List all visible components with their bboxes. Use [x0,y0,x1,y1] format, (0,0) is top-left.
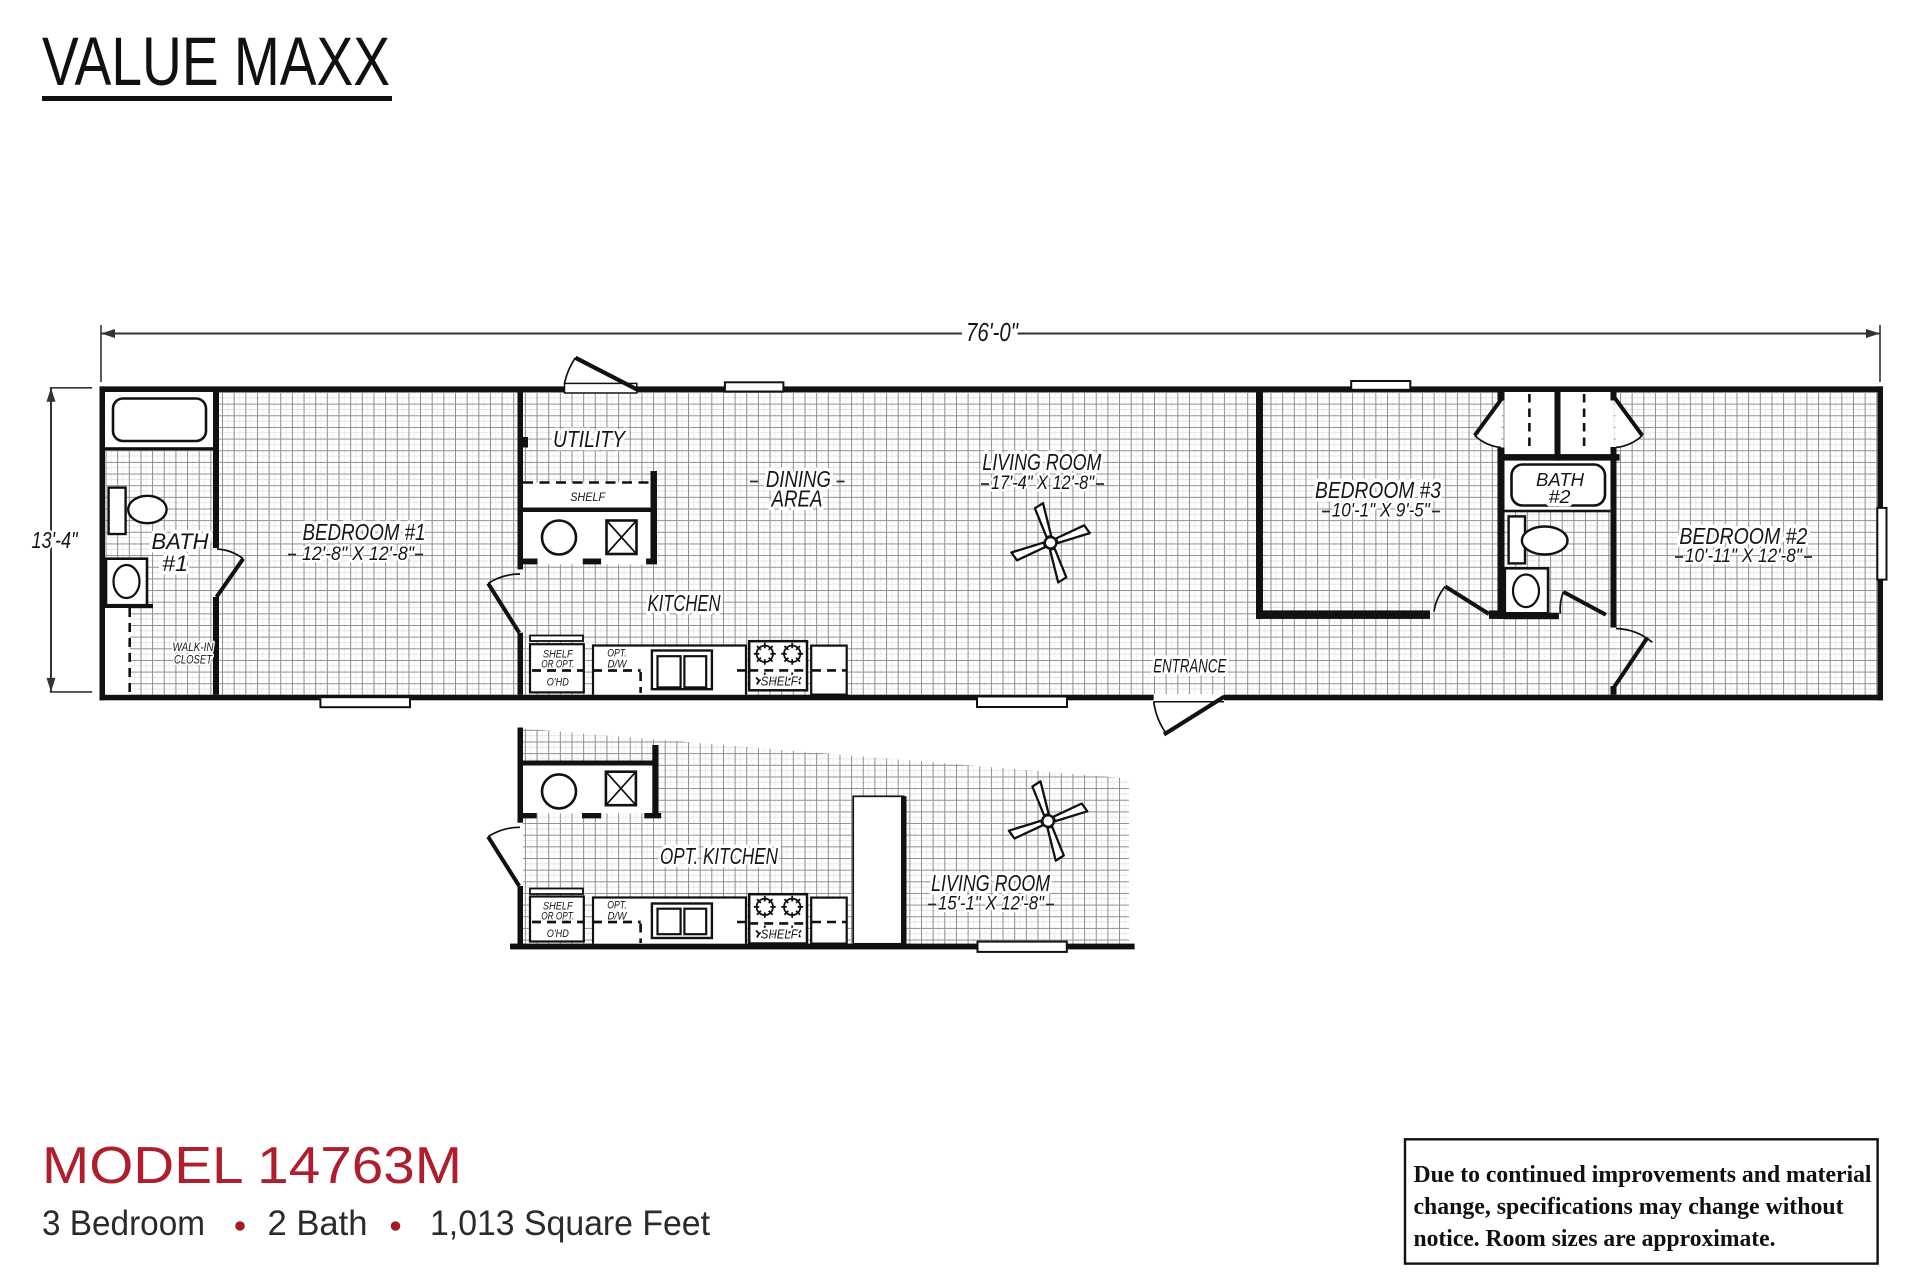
svg-text:change, specifications may cha: change, specifications may change withou… [1414,1193,1845,1220]
svg-text:D/W: D/W [608,659,628,671]
svg-text:12'-8" X 12'-8": 12'-8" X 12'-8" [302,544,415,565]
svg-text:O'HD: O'HD [547,928,569,940]
svg-text:OR OPT.: OR OPT. [541,659,574,671]
svg-text:CLOSET: CLOSET [174,653,213,667]
svg-text:OPT. KITCHEN: OPT. KITCHEN [660,843,778,869]
svg-text:AREA: AREA [770,486,823,512]
svg-text:SHELF: SHELF [761,928,799,942]
svg-text:O'HD: O'HD [547,677,569,689]
svg-text:UTILITY: UTILITY [553,426,626,452]
svg-text:BEDROOM #3: BEDROOM #3 [1315,477,1441,503]
svg-text:Due to continued improvements: Due to continued improvements and materi… [1414,1161,1872,1188]
svg-text:1,013 Square Feet: 1,013 Square Feet [430,1203,710,1243]
svg-text:13'-4": 13'-4" [32,527,79,553]
svg-text:10'-11" X 12'-8": 10'-11" X 12'-8" [1685,546,1803,567]
svg-text:#1: #1 [162,551,188,576]
svg-text:BEDROOM #1: BEDROOM #1 [303,519,426,545]
svg-text:#2: #2 [1549,487,1571,507]
svg-text:KITCHEN: KITCHEN [648,590,721,616]
svg-text:MODEL 14763M: MODEL 14763M [42,1137,462,1195]
svg-text:LIVING ROOM: LIVING ROOM [982,449,1102,475]
svg-text:76'-0": 76'-0" [966,317,1019,347]
svg-text:SHELF: SHELF [761,675,799,689]
svg-text:15'-1" X 12'-8": 15'-1" X 12'-8" [938,894,1045,915]
svg-text:notice. Room sizes are approxi: notice. Room sizes are approximate. [1414,1225,1776,1252]
svg-text:17'-4" X 12'-8": 17'-4" X 12'-8" [991,473,1095,494]
svg-text:SHELF: SHELF [570,490,606,504]
svg-text:ENTRANCE: ENTRANCE [1153,657,1226,678]
svg-text:VALUE MAXX: VALUE MAXX [42,23,390,100]
svg-text:LIVING ROOM: LIVING ROOM [931,870,1051,896]
svg-text:3 Bedroom: 3 Bedroom [42,1203,205,1243]
svg-text:2 Bath: 2 Bath [268,1203,368,1243]
svg-text:10'-1" X 9'-5": 10'-1" X 9'-5" [1332,501,1431,522]
